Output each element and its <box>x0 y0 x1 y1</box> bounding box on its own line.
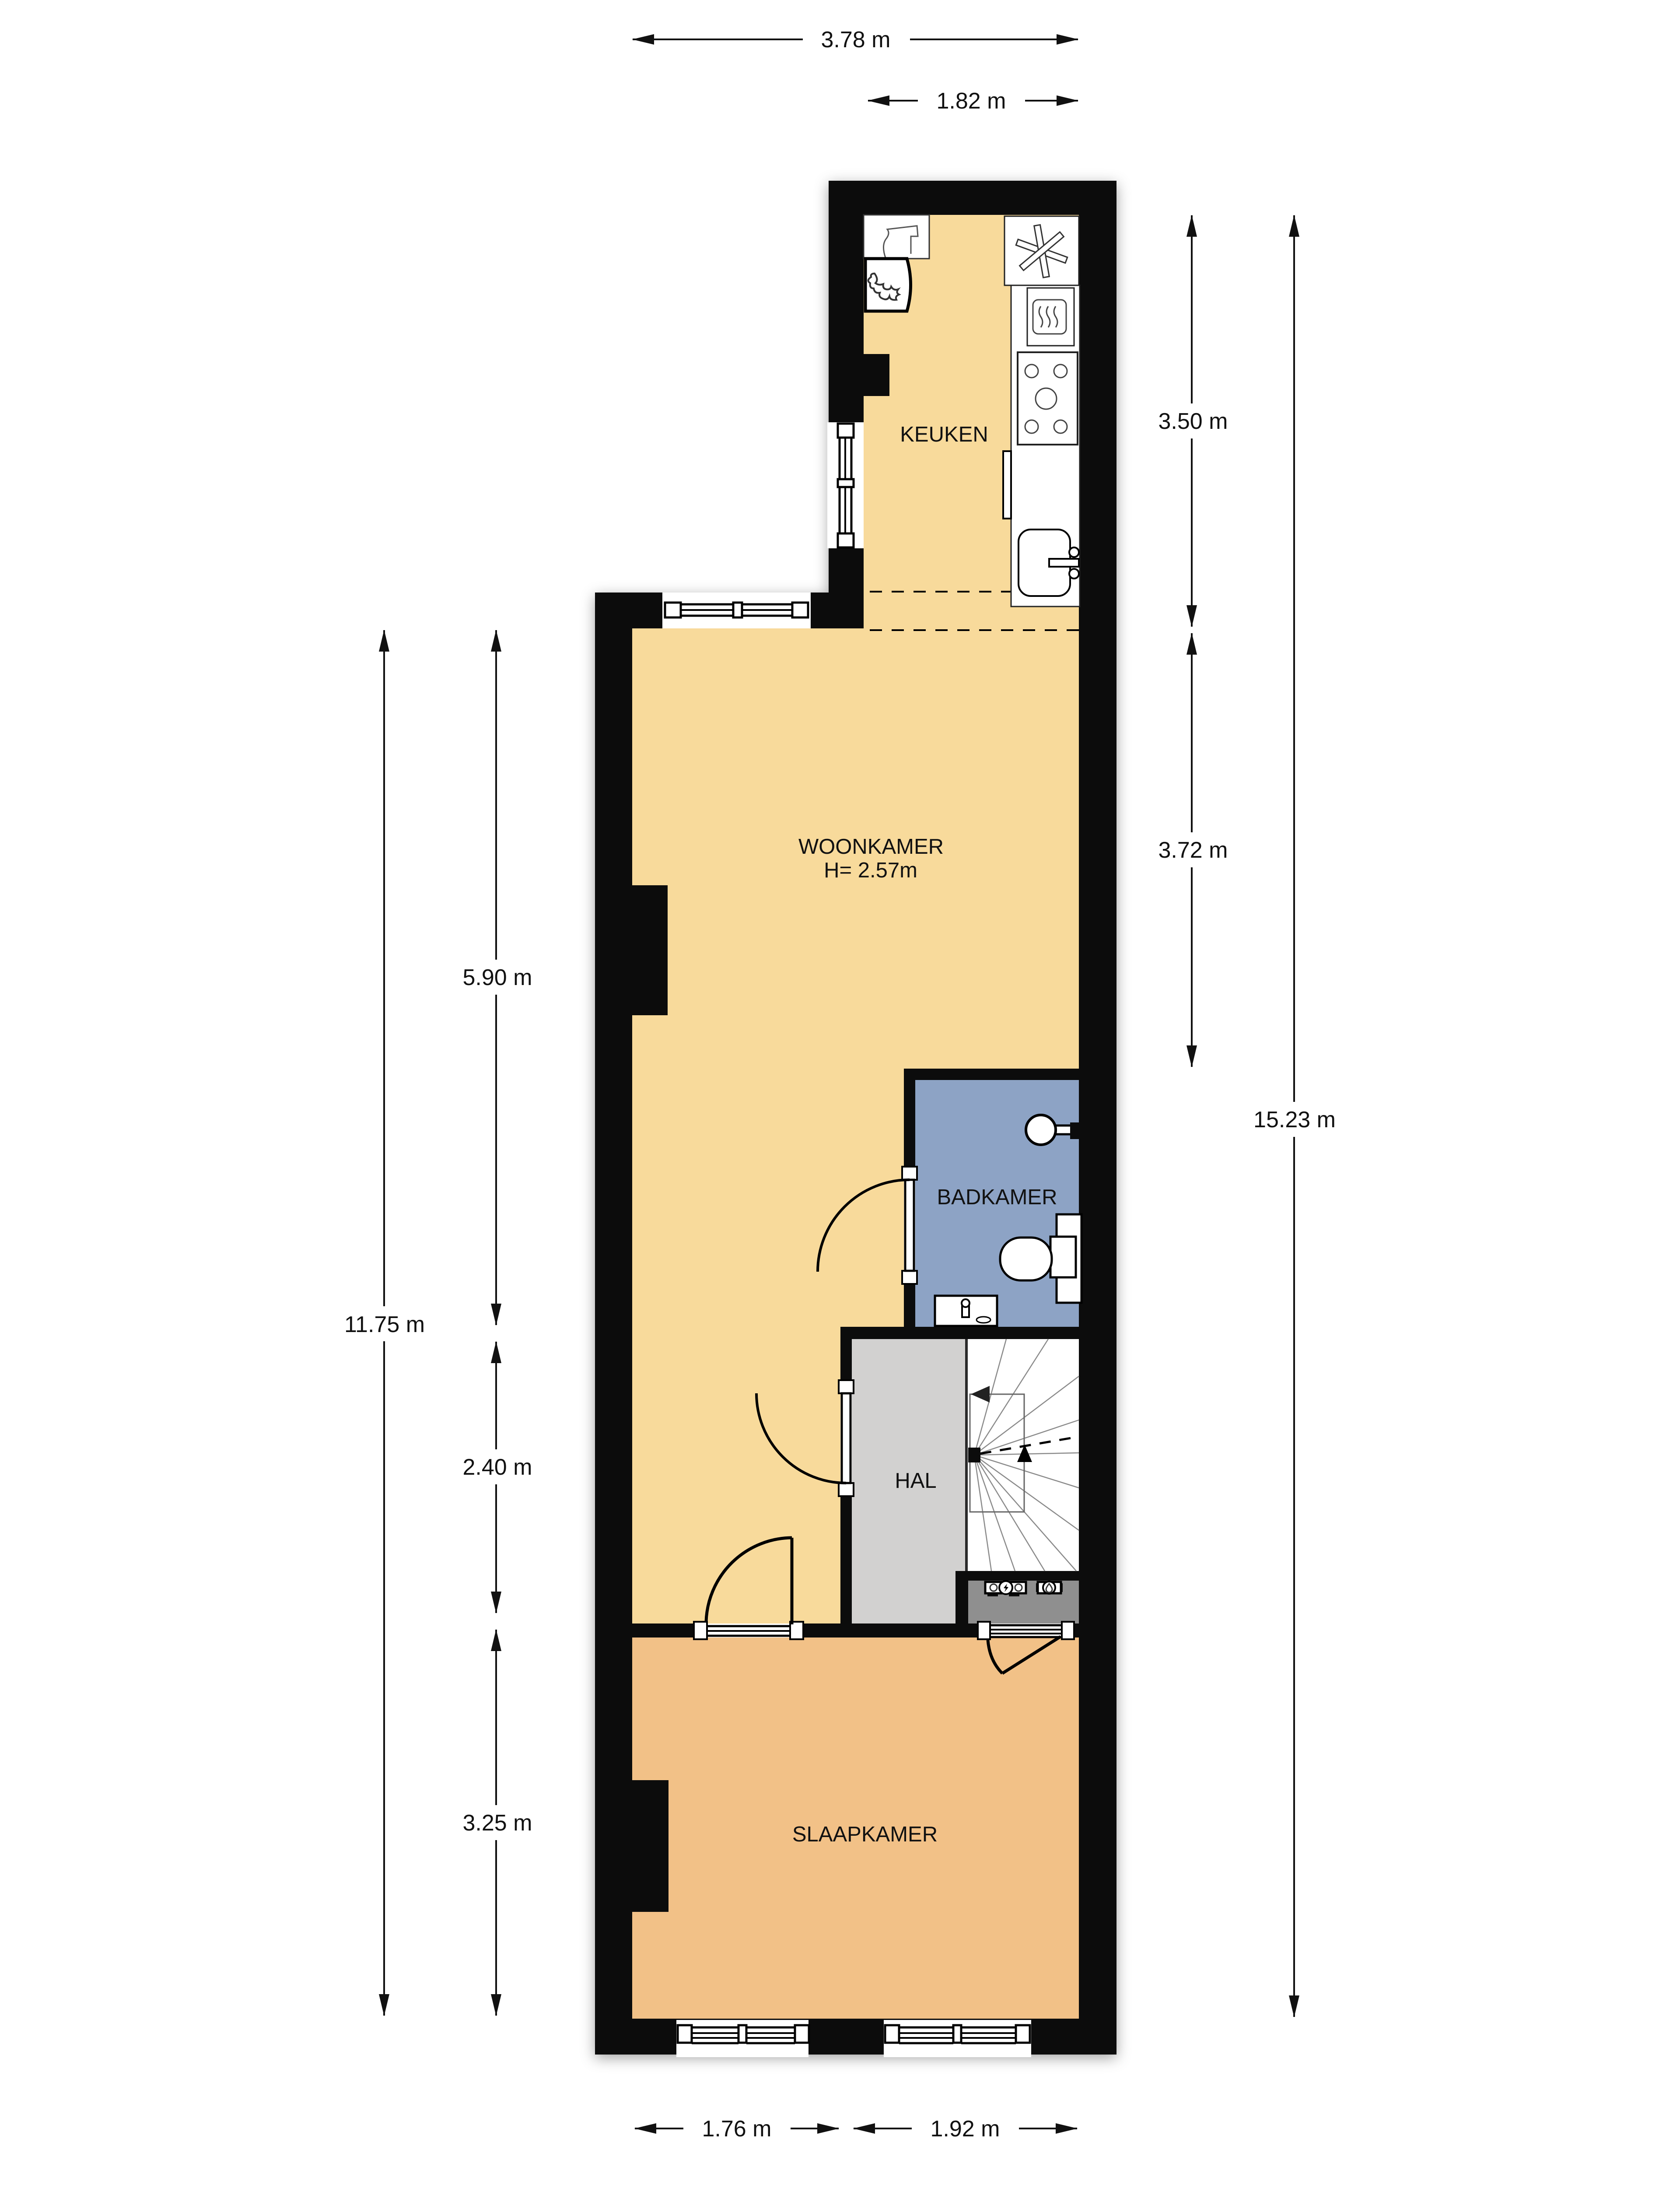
svg-text:WOONKAMER: WOONKAMER <box>798 835 944 859</box>
svg-text:3.25 m: 3.25 m <box>463 1810 532 1836</box>
svg-text:15.23 m: 15.23 m <box>1253 1107 1336 1133</box>
svg-text:2.40 m: 2.40 m <box>463 1455 532 1480</box>
svg-text:BADKAMER: BADKAMER <box>937 1185 1057 1209</box>
svg-text:KEUKEN: KEUKEN <box>900 423 988 446</box>
svg-text:11.75 m: 11.75 m <box>344 1312 425 1337</box>
svg-text:1.38 m: 1.38 m <box>962 2186 1032 2188</box>
svg-text:3.50 m: 3.50 m <box>1158 409 1228 434</box>
svg-text:3.72 m: 3.72 m <box>1158 838 1228 863</box>
svg-text:1.82 m: 1.82 m <box>937 88 1006 114</box>
svg-text:H= 2.57m: H= 2.57m <box>824 859 917 882</box>
svg-text:3.78 m: 3.78 m <box>821 27 891 53</box>
svg-text:5.90 m: 5.90 m <box>463 965 532 990</box>
svg-text:1.92 m: 1.92 m <box>931 2116 1000 2142</box>
svg-text:SLAAPKAMER: SLAAPKAMER <box>792 1823 938 1846</box>
svg-text:HAL: HAL <box>895 1469 936 1493</box>
svg-text:1.76 m: 1.76 m <box>702 2116 772 2142</box>
